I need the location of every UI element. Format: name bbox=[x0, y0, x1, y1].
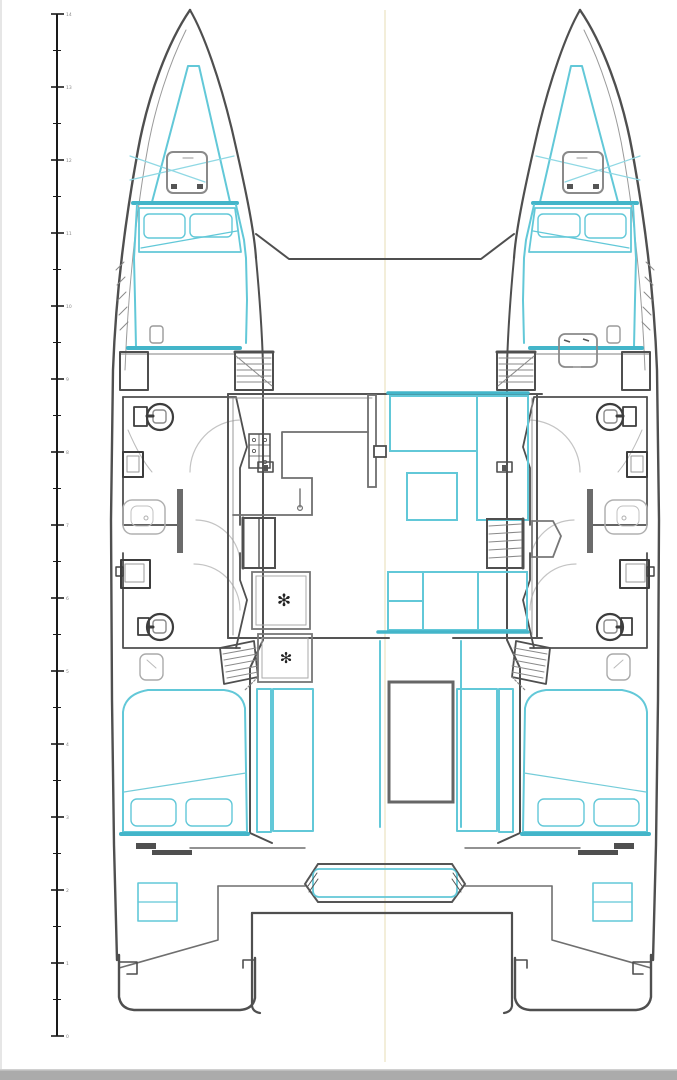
ruler-tick-label: 6 bbox=[66, 596, 69, 602]
stove-icon bbox=[249, 434, 270, 468]
salon-sliding-door bbox=[389, 682, 453, 802]
ruler-tick-label: 9 bbox=[66, 377, 69, 383]
ruler-tick-label: 1 bbox=[66, 961, 69, 967]
salon: ✻ ✻ bbox=[228, 393, 561, 682]
ruler-ticks: 14131211109876543210 bbox=[51, 12, 72, 1040]
ruler-tick-label: 2 bbox=[66, 888, 69, 894]
floorplan-drawing: 14131211109876543210 bbox=[0, 0, 677, 1080]
freezer-snowflake-icon: ✻ bbox=[277, 591, 291, 611]
divider-knob bbox=[374, 446, 386, 457]
bottom-edge-bar bbox=[0, 1069, 677, 1080]
catamaran-floorplan-page: 14131211109876543210 bbox=[0, 0, 677, 1080]
ruler-tick-label: 0 bbox=[66, 1034, 69, 1040]
ruler-tick-label: 5 bbox=[66, 669, 69, 675]
ruler-tick-label: 14 bbox=[66, 12, 72, 18]
galley-divider bbox=[368, 395, 376, 487]
starboard-salon-stairs-icon bbox=[487, 519, 523, 568]
freezer-snowflake-icon: ✻ bbox=[280, 649, 293, 667]
ruler-tick-label: 10 bbox=[66, 304, 72, 310]
galley bbox=[233, 395, 386, 515]
aft-walkway bbox=[252, 913, 512, 1013]
salon-table bbox=[407, 473, 457, 520]
ruler-tick-label: 12 bbox=[66, 158, 72, 164]
galley-sink-icon bbox=[298, 489, 303, 510]
starboard-hull bbox=[385, 10, 659, 1010]
dinette bbox=[378, 393, 528, 632]
scale-ruler: 14131211109876543210 bbox=[51, 12, 72, 1040]
ruler-tick-label: 3 bbox=[66, 815, 69, 821]
ruler-tick-label: 4 bbox=[66, 742, 69, 748]
deck-hatch-icon bbox=[559, 334, 597, 367]
ruler-tick-label: 8 bbox=[66, 450, 69, 456]
ruler-tick-label: 13 bbox=[66, 85, 72, 91]
cockpit bbox=[252, 641, 512, 1013]
port-salon-stairs-icon bbox=[243, 518, 275, 568]
ruler-tick-label: 7 bbox=[66, 523, 69, 529]
port-hull bbox=[111, 10, 385, 1010]
ruler-tick-label: 11 bbox=[66, 231, 72, 237]
